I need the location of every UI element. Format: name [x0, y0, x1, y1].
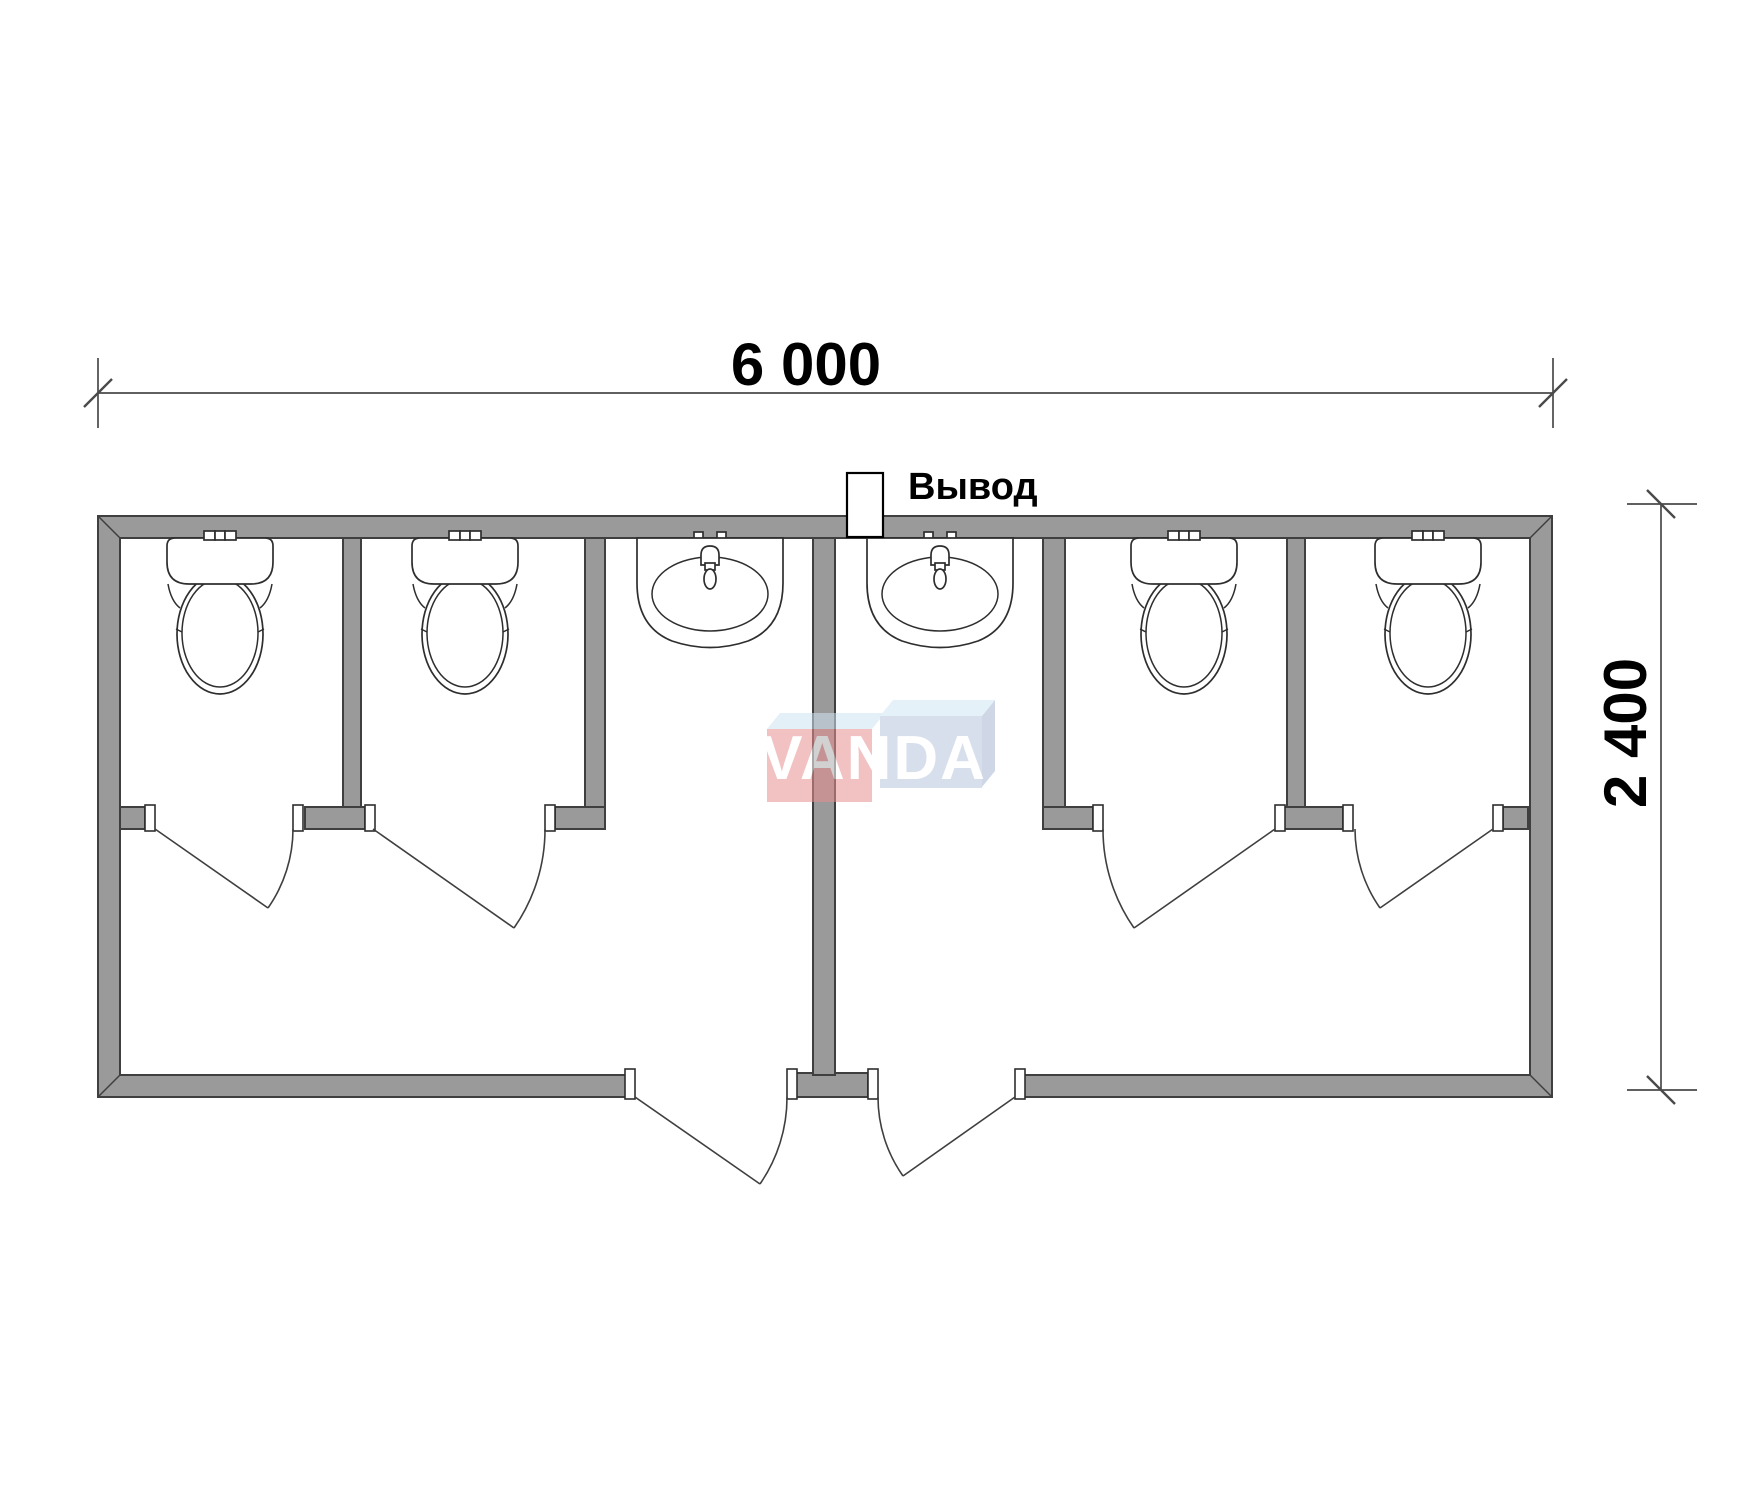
jamb	[625, 1069, 635, 1099]
entrance-door-left	[635, 1097, 787, 1184]
jamb	[1275, 805, 1285, 831]
jamb	[145, 805, 155, 831]
stall-front-wall-4	[1043, 807, 1093, 829]
jamb	[1015, 1069, 1025, 1099]
jamb	[787, 1069, 797, 1099]
watermark-right-bevel	[880, 700, 995, 716]
entrance-opening-right	[878, 1070, 1015, 1100]
dimension-width: 6 000	[84, 331, 1567, 428]
stall-door-4	[1355, 829, 1493, 908]
stall-door-1	[155, 829, 293, 908]
jamb	[1493, 805, 1503, 831]
sink-2	[867, 532, 1013, 648]
stall-front-wall-5	[1283, 807, 1343, 829]
sink-1	[637, 532, 783, 648]
central-wall	[813, 538, 835, 1075]
stall-front-wall-3	[555, 807, 605, 829]
stall-door-3	[1103, 829, 1275, 928]
stall-front-wall-6	[1503, 807, 1528, 829]
jamb	[868, 1069, 878, 1099]
toilet-4	[1375, 531, 1481, 694]
floor-plan-svg: Вывод VANDA 6 000 2 400	[0, 0, 1763, 1503]
jamb	[545, 805, 555, 831]
jamb	[293, 805, 303, 831]
watermark-text: VANDA	[761, 724, 987, 793]
toilet-1	[167, 531, 273, 694]
dimension-width-label: 6 000	[731, 331, 881, 398]
stall-door-2	[373, 829, 545, 928]
stall-front-wall-1	[120, 807, 145, 829]
entrance-door-right	[878, 1097, 1015, 1176]
stall-front-wall-2	[305, 807, 365, 829]
dimension-height-label: 2 400	[1592, 658, 1659, 808]
partition-wall-4	[1287, 538, 1305, 807]
jamb	[1343, 805, 1353, 831]
toilet-2	[412, 531, 518, 694]
partition-wall-2	[585, 538, 605, 807]
vanda-watermark: VANDA	[761, 700, 995, 802]
dimension-height: 2 400	[1592, 490, 1697, 1104]
toilet-3	[1131, 531, 1237, 694]
outlet-label: Вывод	[908, 466, 1038, 508]
outlet-box	[847, 473, 883, 537]
jamb	[1093, 805, 1103, 831]
jamb	[365, 805, 375, 831]
walls	[98, 516, 1552, 1100]
bottom-center-wall-stub	[795, 1073, 868, 1097]
floor-plan-page: Вывод VANDA 6 000 2 400	[0, 0, 1763, 1503]
entrance-opening-left	[635, 1070, 787, 1100]
partition-wall-1	[343, 538, 361, 807]
partition-wall-3	[1043, 538, 1065, 807]
